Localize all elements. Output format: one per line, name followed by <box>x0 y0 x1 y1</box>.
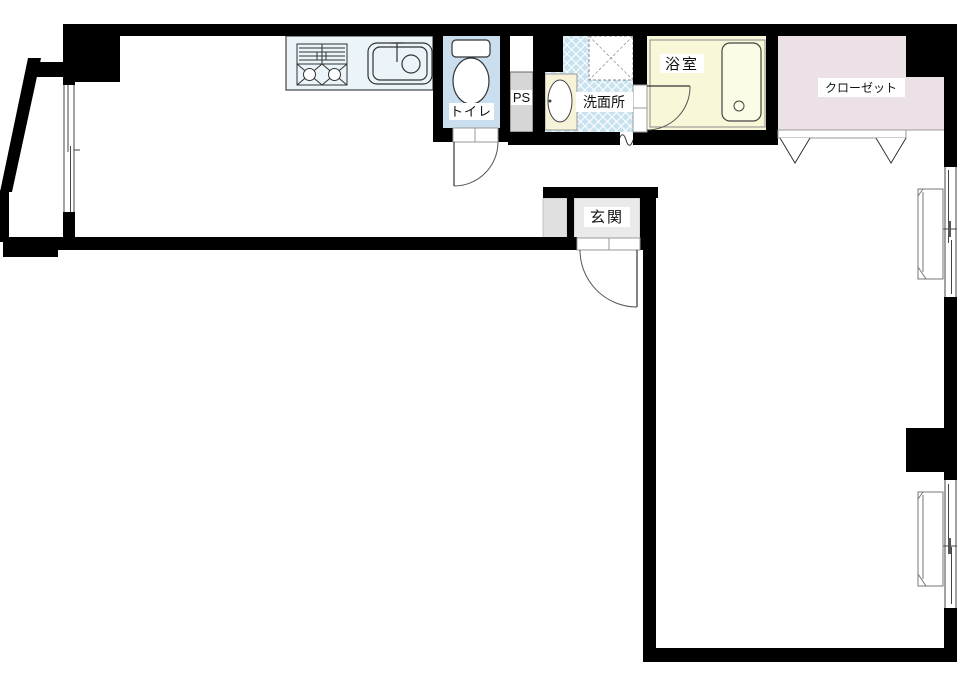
right-window-lower <box>918 480 957 608</box>
toilet-label: トイレ <box>450 104 492 119</box>
floor-plan-canvas: トイレ PS 洗面所 浴室 クローゼット 玄関 <box>0 0 980 674</box>
closet-folding-door-left <box>780 138 810 163</box>
washroom-label: 洗面所 <box>583 94 625 110</box>
closet-label: クローゼット <box>825 81 897 95</box>
basin-faucet-dot <box>549 100 552 103</box>
right-window-upper-lock <box>948 221 951 237</box>
toilet-icon <box>452 40 490 104</box>
entrance-side-box <box>543 198 567 238</box>
closet-folding-door-right <box>876 138 906 163</box>
left-window <box>63 85 80 212</box>
toilet-tank <box>452 40 490 57</box>
left-window-band <box>63 85 75 212</box>
right-window-upper-panel <box>918 189 943 279</box>
kitchen-counter <box>286 36 433 90</box>
closet-floor-extension <box>906 77 944 130</box>
bathtub-icon <box>722 43 761 121</box>
entrance-door-swing-arc <box>580 250 637 307</box>
right-window-lower-lock <box>948 538 951 554</box>
right-window-upper <box>918 167 957 297</box>
right-window-lower-panel <box>918 492 943 586</box>
window-panel-outline <box>918 492 943 586</box>
floor-plan: トイレ PS 洗面所 浴室 クローゼット 玄関 <box>0 0 980 674</box>
curtain-squiggle <box>619 135 633 146</box>
toilet-bowl <box>453 58 489 104</box>
entrance-door <box>577 238 640 307</box>
stove-burner-right <box>329 69 341 81</box>
toilet-door-swing-arc <box>454 142 498 186</box>
window-panel-outline <box>918 189 943 279</box>
stove-burner-left <box>304 69 316 81</box>
pipe-space-label: PS <box>513 90 531 105</box>
closet-door-track <box>778 130 906 138</box>
bathroom-label: 浴室 <box>665 56 699 73</box>
toilet-door <box>453 128 498 186</box>
entrance-label: 玄関 <box>590 209 624 226</box>
closet-doors <box>778 130 906 163</box>
wash-basin-icon <box>548 80 572 122</box>
